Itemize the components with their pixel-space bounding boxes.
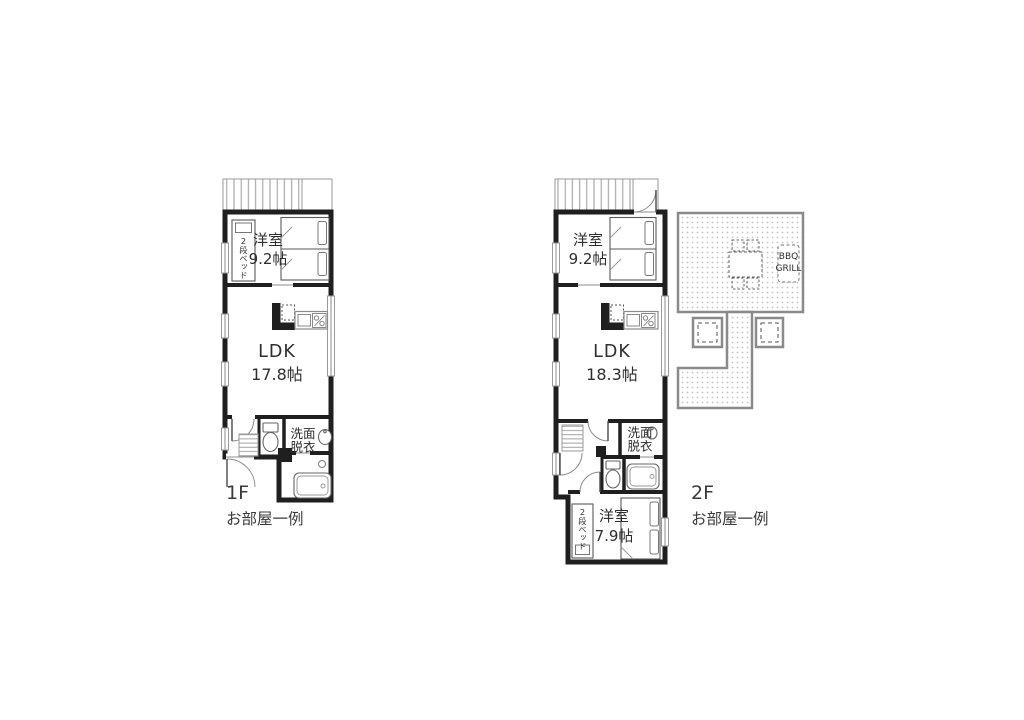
floor2-ldk-size: 18.3帖 [586, 365, 638, 384]
bbq-grill: BBQ GRILL [776, 245, 802, 282]
floor1-washbasin [319, 430, 332, 445]
floor2-label: 2F [691, 482, 714, 504]
floor1-caption: お部屋一例 [226, 510, 304, 528]
floor2-bedroom-name: 洋室 [573, 231, 603, 249]
balcony-landing [302, 179, 332, 212]
floor2-balcony [555, 179, 658, 212]
floor-plan-sheet: 2段ベッド 洋室 9.2帖 LDK 17.8帖 洗面 脱衣 1F お部屋一例 [0, 0, 1024, 720]
bbq-label-line2: GRILL [776, 264, 802, 274]
toilet-bowl [606, 470, 620, 488]
entry-landing [633, 179, 658, 212]
stair-hatch [555, 179, 633, 212]
toilet-bowl [263, 433, 278, 452]
floor2-bath [627, 464, 659, 489]
floor2-bedroom2-size: 7.9帖 [595, 527, 634, 545]
floor-plan-svg: 2段ベッド 洋室 9.2帖 LDK 17.8帖 洗面 脱衣 1F お部屋一例 [0, 0, 1024, 720]
page-background [0, 0, 1024, 720]
floor1-ldk-name: LDK [258, 342, 296, 362]
bunk-bed-label: 2段ベッド [578, 507, 588, 550]
floor1-label: 1F [226, 482, 249, 504]
kitchen-sink [298, 315, 311, 327]
floor1-step-hatch [239, 434, 258, 456]
bbq-label-line1: BBQ [779, 252, 798, 262]
floor2-toilet [606, 461, 620, 488]
floor1-ldk-size: 17.8帖 [251, 365, 303, 384]
planter [756, 318, 783, 347]
toilet-tank [263, 423, 278, 432]
toilet-tank [606, 461, 620, 469]
floor2-bedroom-size: 9.2帖 [569, 250, 608, 268]
wall-corner-block [596, 446, 606, 457]
floor2-bunk-bed: 2段ベッド [572, 504, 593, 558]
floor2-stairs-hatch [562, 425, 583, 451]
floor1-bedroom-size: 9.2帖 [249, 250, 288, 268]
floor2-beds [610, 218, 656, 281]
floor1-balcony [223, 179, 332, 212]
bunk-bed-label: 2段ベッド [239, 236, 249, 279]
table [729, 252, 762, 277]
kitchen-sink [627, 315, 640, 327]
balcony-hatch [223, 179, 302, 212]
floor2-washroom-line2: 脱衣 [627, 439, 653, 454]
floor1-toilet [263, 423, 278, 452]
floor1-beds [281, 218, 329, 281]
bathtub [294, 473, 331, 498]
floor1-washroom-line2: 脱衣 [290, 440, 316, 455]
floor1-bedroom-name: 洋室 [253, 231, 283, 249]
faucet [324, 430, 327, 433]
planter [693, 318, 722, 347]
floor2-caption: お部屋一例 [691, 510, 769, 528]
floor2-ldk-name: LDK [593, 342, 631, 362]
floor2-bedroom2-name: 洋室 [599, 507, 629, 525]
